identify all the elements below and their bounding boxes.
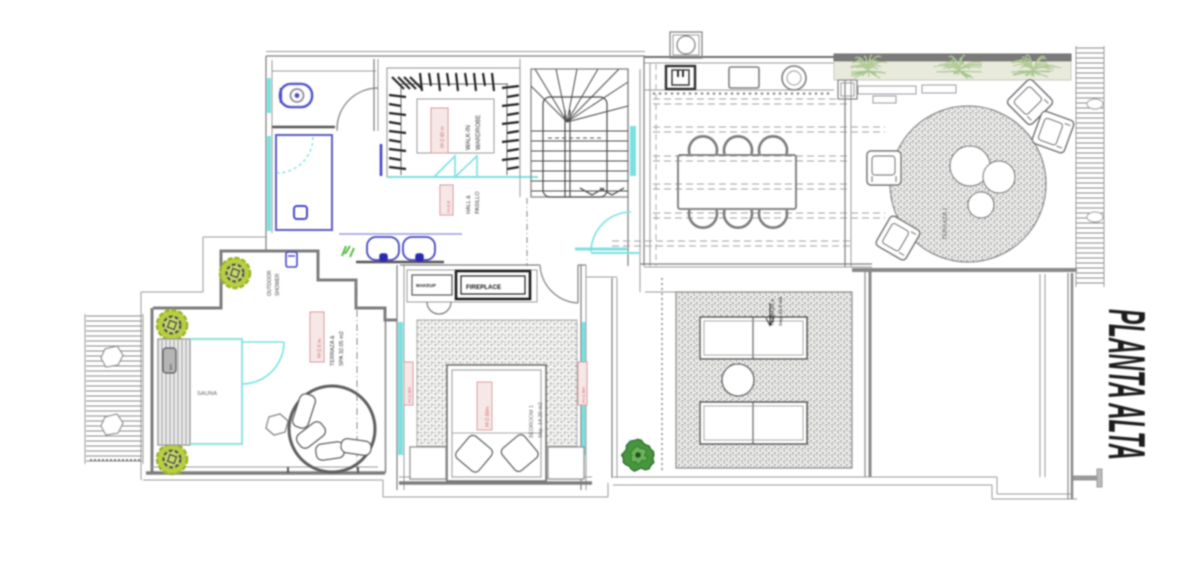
svg-text:PLANTA ALTA: PLANTA ALTA bbox=[1097, 309, 1155, 460]
svg-text:H=2.6 m: H=2.6 m bbox=[317, 339, 323, 358]
svg-text:H=2.6m: H=2.6m bbox=[407, 387, 412, 403]
svg-text:Sup. 14.20 m2: Sup. 14.20 m2 bbox=[538, 402, 544, 438]
svg-text:SAUNA: SAUNA bbox=[197, 391, 217, 397]
svg-text:WARDROBE: WARDROBE bbox=[476, 115, 482, 150]
svg-text:TERRAZA &: TERRAZA & bbox=[330, 335, 336, 366]
svg-text:PASILLO: PASILLO bbox=[475, 191, 481, 214]
svg-text:H=2.6m: H=2.6m bbox=[581, 387, 586, 403]
svg-text:MAKEUP: MAKEUP bbox=[416, 283, 436, 288]
svg-text:SHOWER: SHOWER bbox=[275, 273, 281, 296]
svg-text:TERRAZA 1: TERRAZA 1 bbox=[943, 207, 949, 240]
svg-text:TERRAZA 2: TERRAZA 2 bbox=[770, 299, 776, 326]
svg-text:H=2.60 m: H=2.60 m bbox=[440, 126, 446, 148]
svg-text:BIO: BIO bbox=[169, 364, 173, 370]
svg-text:BEDROOM 1: BEDROOM 1 bbox=[529, 405, 535, 438]
svg-text:WALK-IN: WALK-IN bbox=[466, 125, 472, 150]
svg-text:OUTDOOR: OUTDOOR bbox=[267, 270, 273, 296]
svg-text:SPA 32.05 m2: SPA 32.05 m2 bbox=[339, 331, 345, 366]
svg-text:HALL &: HALL & bbox=[466, 195, 472, 214]
svg-text:FIREPLACE: FIREPLACE bbox=[466, 284, 501, 291]
svg-text:H=2.6: H=2.6 bbox=[446, 200, 451, 213]
svg-text:H=2.60m: H=2.60m bbox=[485, 407, 491, 427]
svg-text:Sup. 21.0 m2: Sup. 21.0 m2 bbox=[778, 296, 784, 326]
